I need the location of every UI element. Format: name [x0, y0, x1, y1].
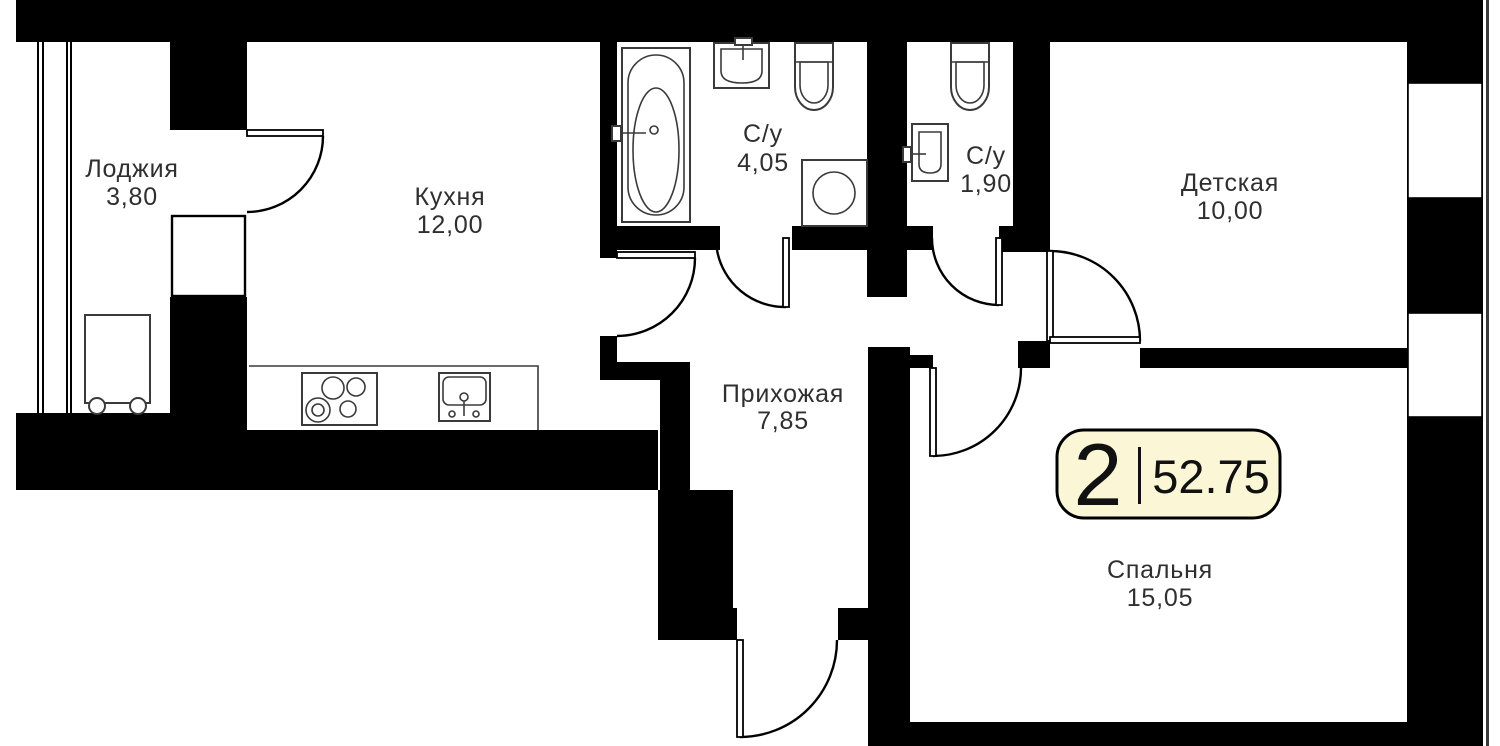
toilet — [795, 43, 833, 110]
vanity-sink — [714, 38, 769, 88]
door-entrance — [737, 640, 837, 737]
door-bathroom-1 — [717, 238, 789, 307]
exterior-face-line — [1486, 0, 1489, 746]
door-kitchen — [617, 252, 695, 336]
toilet — [951, 43, 989, 110]
room-area-bedroom: 15,05 — [1127, 584, 1194, 612]
kitchen-counter — [249, 366, 538, 430]
kitchen-sink — [439, 373, 490, 421]
door-loggia — [247, 130, 323, 212]
room-area-kitchen: 12,00 — [417, 211, 484, 239]
wall-sink — [903, 124, 948, 181]
room-label-hallway: Прихожая — [722, 380, 844, 408]
badge-total-area: 52.75 — [1152, 450, 1270, 503]
window — [1408, 313, 1482, 417]
room-label-bathroom-1: С/у — [743, 120, 783, 148]
room-area-children: 10,00 — [1197, 197, 1264, 225]
washing-machine — [802, 160, 867, 226]
apartment-badge[interactable]: 2 52.75 — [1057, 425, 1280, 524]
room-area-bathroom-1: 4,05 — [737, 149, 789, 177]
floor-plan-page: Лоджия 3,80 Кухня 12,00 С/у 4,05 С/у 1,9… — [0, 0, 1500, 746]
stove — [302, 373, 377, 425]
badge-rooms-count: 2 — [1074, 425, 1123, 524]
room-area-hallway: 7,85 — [757, 407, 809, 435]
door-bedroom — [930, 368, 1021, 456]
room-area-loggia: 3,80 — [106, 183, 158, 211]
door-bathroom-2 — [932, 238, 1002, 305]
walls — [16, 0, 1483, 746]
badge-divider — [1138, 447, 1141, 504]
room-label-children: Детская — [1181, 169, 1279, 197]
bathtub — [612, 48, 690, 222]
door-children-room — [1047, 251, 1140, 343]
room-label-kitchen: Кухня — [415, 183, 486, 211]
loggia-bench — [85, 315, 150, 414]
room-label-bathroom-2: С/у — [966, 142, 1006, 170]
room-area-bathroom-2: 1,90 — [960, 170, 1012, 198]
window — [1408, 83, 1482, 198]
wall-opening-box — [172, 216, 245, 296]
loggia-glazing — [37, 42, 72, 413]
room-label-bedroom: Спальня — [1107, 556, 1213, 584]
room-label-loggia: Лоджия — [85, 155, 178, 183]
floor-plan-svg: Лоджия 3,80 Кухня 12,00 С/у 4,05 С/у 1,9… — [0, 0, 1500, 746]
